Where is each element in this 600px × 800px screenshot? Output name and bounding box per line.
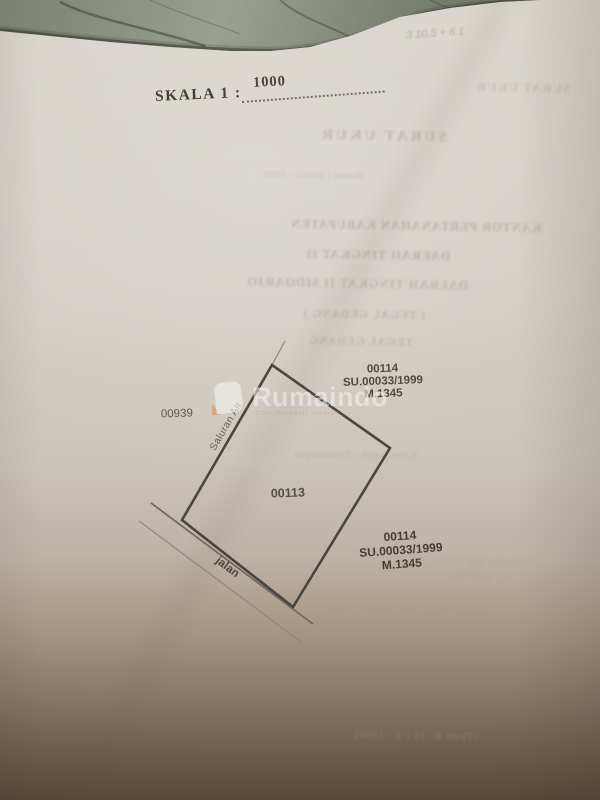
rumaindo-logo-body (213, 381, 243, 415)
road-line-lower (139, 521, 301, 642)
watermark: Rumaindo Cari Properti Idaman (206, 374, 406, 426)
drain-extension-line (272, 341, 285, 365)
marble-vein (150, 0, 240, 34)
road-label: jalan (212, 554, 241, 580)
photographed-survey-document: SURAT UKUR SURAT UKUR Nomor : 00033 / 19… (0, 0, 600, 800)
watermark-tagline: Cari Properti Idaman (256, 410, 340, 417)
paper-sheet: SURAT UKUR SURAT UKUR Nomor : 00033 / 19… (0, 0, 600, 800)
label-southeast-parcel: 00114 SU.00033/1999 M.1345 (358, 526, 444, 574)
label-parcel-number: 00113 (271, 485, 306, 500)
southeast-parcel-map: M.1345 (381, 556, 422, 573)
marble-vein (280, 0, 356, 40)
label-west-parcel: 00939 (161, 407, 193, 420)
rumaindo-logo-icon (212, 380, 246, 420)
watermark-brand: Rumaindo (252, 382, 388, 413)
